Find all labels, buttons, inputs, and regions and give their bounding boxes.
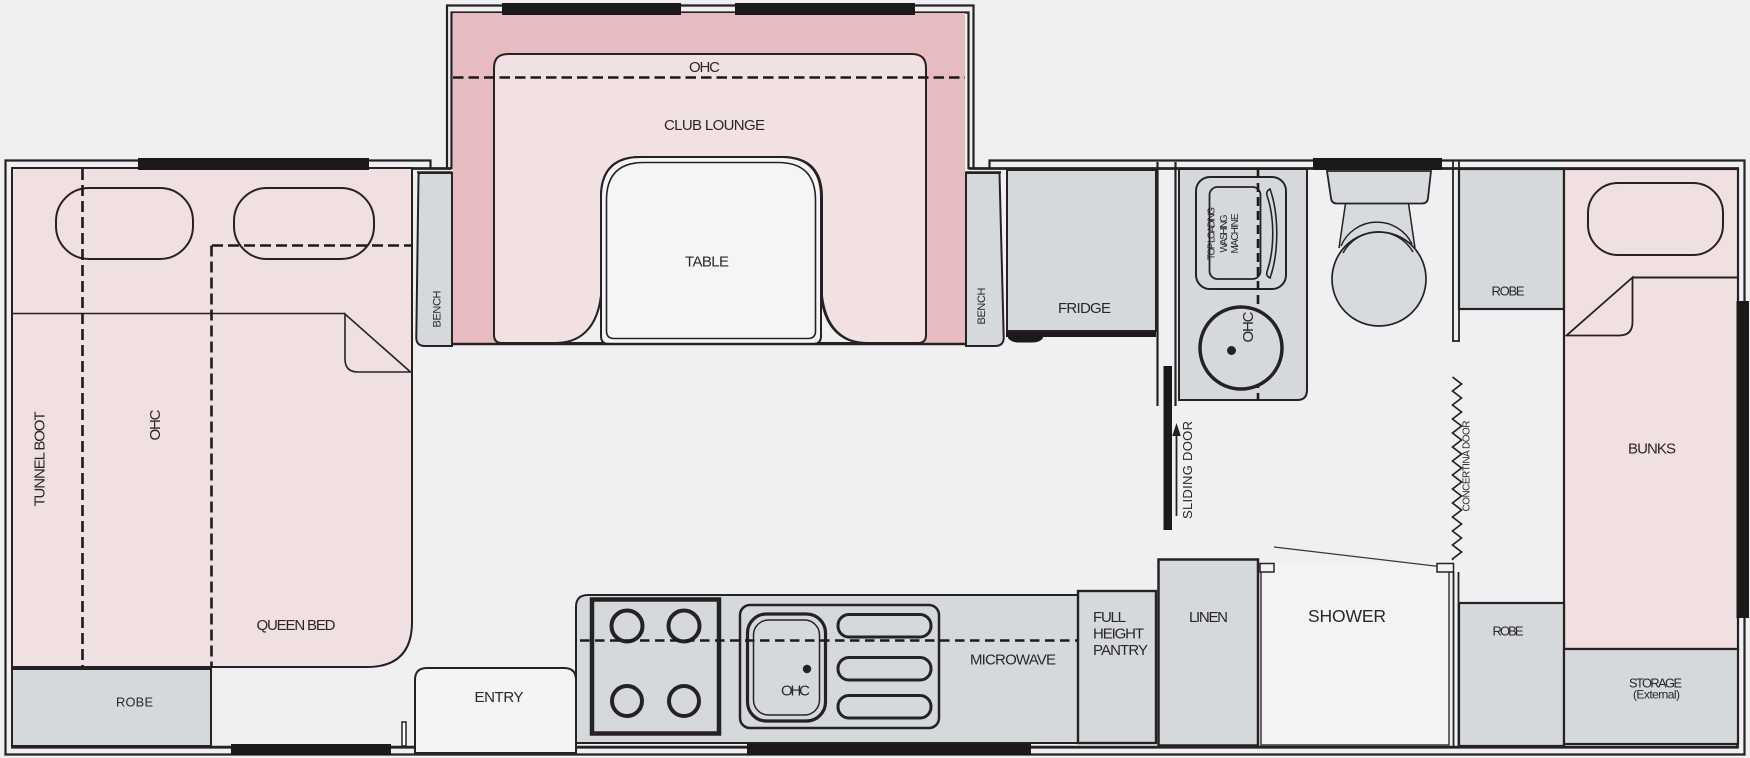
svg-text:LINEN: LINEN (1189, 609, 1228, 626)
svg-text:OHC: OHC (689, 59, 720, 76)
svg-text:OHC: OHC (781, 683, 810, 700)
svg-text:MICROWAVE: MICROWAVE (970, 652, 1056, 669)
svg-text:BENCH: BENCH (432, 290, 444, 327)
svg-text:FRIDGE: FRIDGE (1058, 300, 1111, 317)
svg-text:BUNKS: BUNKS (1628, 441, 1676, 458)
svg-text:QUEEN BED: QUEEN BED (257, 617, 336, 634)
svg-text:ROBE: ROBE (1492, 284, 1525, 299)
svg-text:CONCERTINA DOOR: CONCERTINA DOOR (1462, 421, 1473, 512)
svg-text:ROBE: ROBE (1493, 624, 1524, 639)
svg-text:SLIDING DOOR: SLIDING DOOR (1180, 421, 1195, 519)
svg-text:CLUB LOUNGE: CLUB LOUNGE (664, 117, 765, 134)
svg-text:ROBE: ROBE (116, 695, 153, 710)
svg-text:SHOWER: SHOWER (1308, 606, 1386, 626)
svg-text:OHC: OHC (1240, 311, 1257, 342)
svg-text:BENCH: BENCH (976, 287, 988, 324)
svg-text:TOP LOADING: TOP LOADING (1207, 207, 1218, 260)
svg-text:MACHINE: MACHINE (1230, 213, 1241, 253)
svg-text:FULL: FULL (1093, 609, 1126, 626)
svg-text:ENTRY: ENTRY (475, 689, 524, 706)
svg-text:OHC: OHC (147, 409, 164, 440)
svg-text:TUNNEL BOOT: TUNNEL BOOT (32, 412, 49, 507)
svg-text:(External): (External) (1633, 688, 1680, 702)
svg-text:PANTRY: PANTRY (1093, 642, 1148, 659)
svg-text:HEIGHT: HEIGHT (1093, 626, 1144, 643)
svg-text:WASHING: WASHING (1219, 214, 1230, 252)
svg-text:TABLE: TABLE (685, 254, 729, 271)
